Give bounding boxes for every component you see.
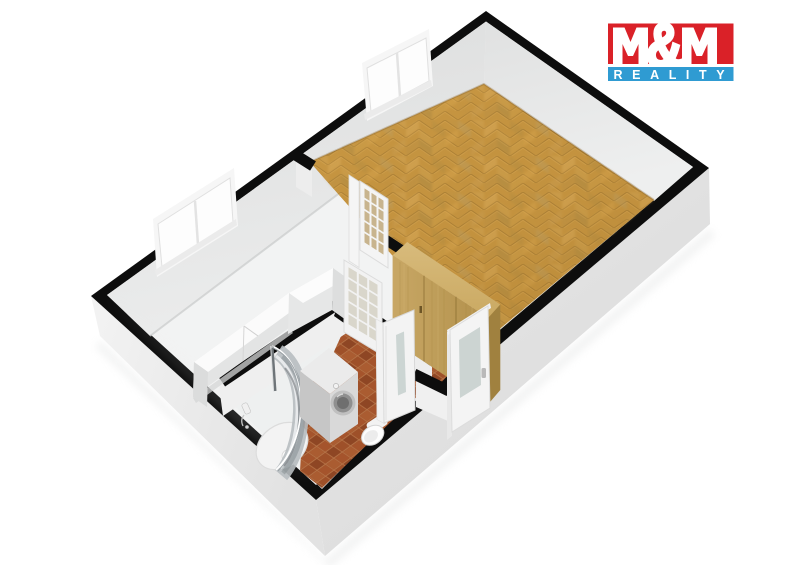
svg-text:REALITY: REALITY	[614, 68, 735, 82]
